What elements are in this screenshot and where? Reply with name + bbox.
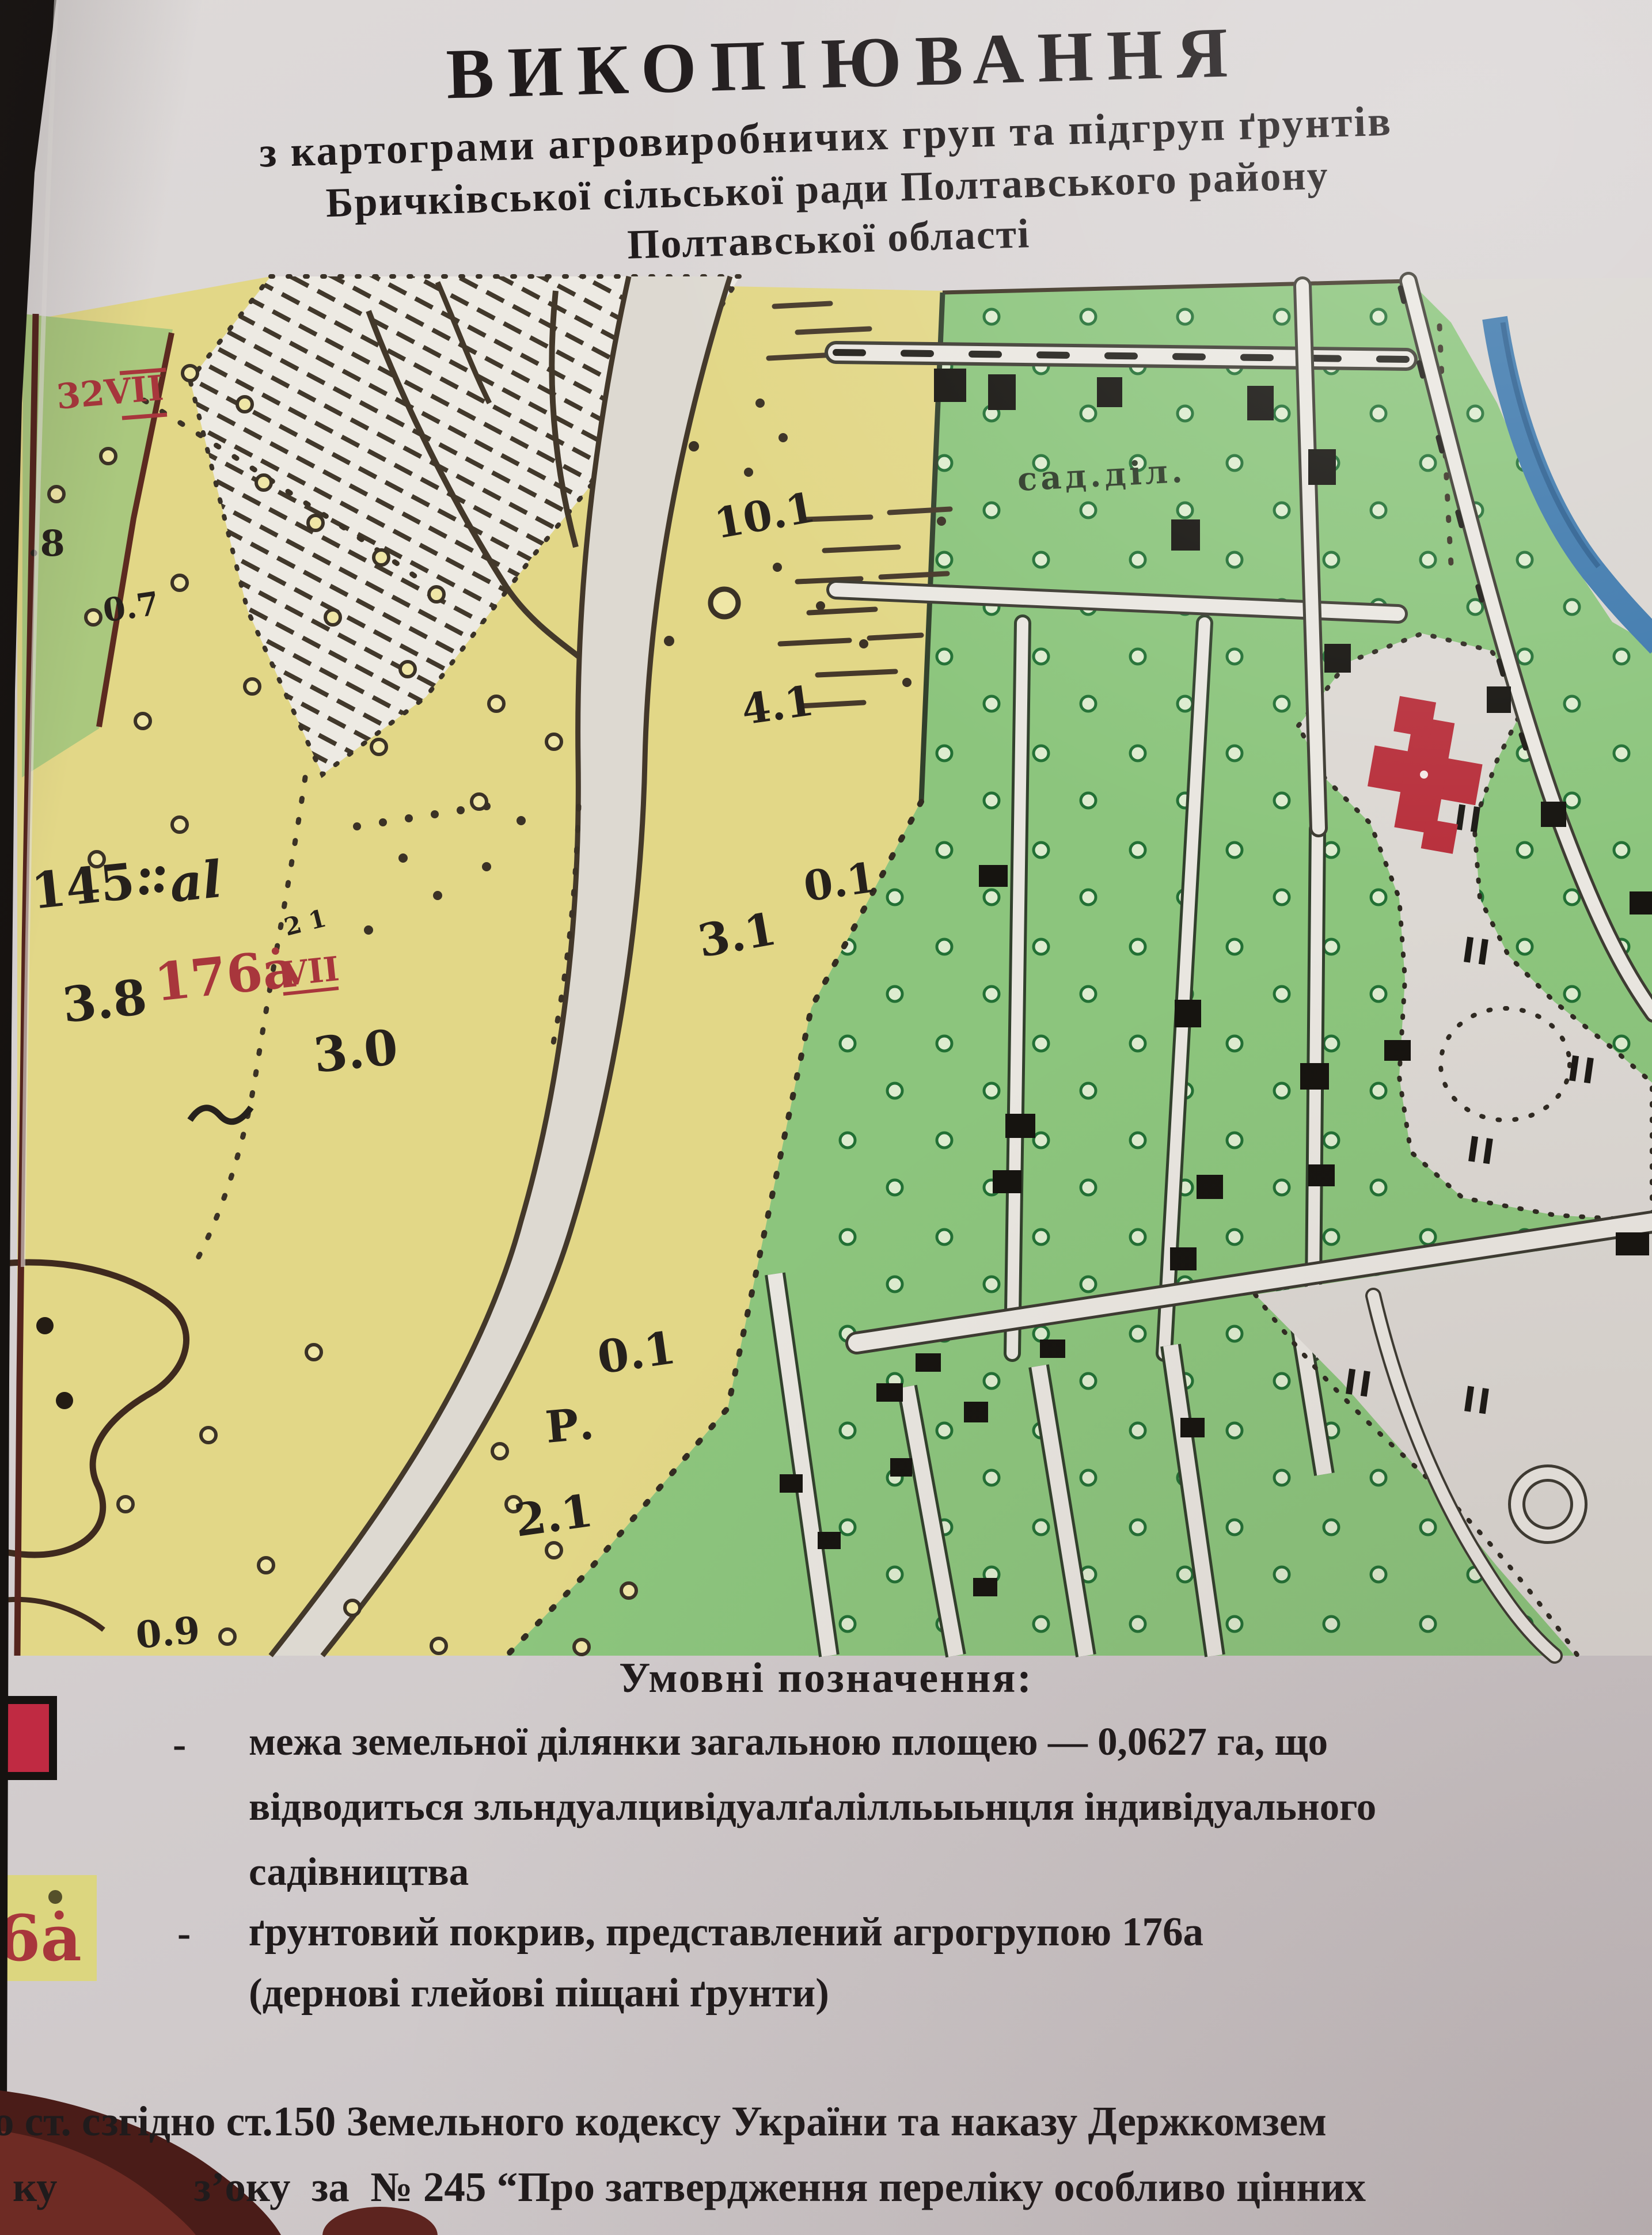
map-label-145: 145 bbox=[29, 852, 138, 921]
legend-item-soil: ґрунтовий покрив, представлений агрогруп… bbox=[249, 1902, 1203, 2024]
legend-item-line: межа земельної ділянки загальною площею … bbox=[249, 1709, 1376, 1774]
map-label-0-7: 0.7 bbox=[101, 585, 162, 630]
footer-line-2: ку зʼоку за № 245 “Про затвердження пере… bbox=[13, 2163, 1366, 2211]
legend-agrogroup-symbol: 6ȧ bbox=[0, 1875, 97, 1981]
map-label-3-8: 3.8 bbox=[60, 968, 150, 1034]
legend-bullet-2: - bbox=[177, 1911, 191, 1957]
map-label-r: Р. bbox=[544, 1398, 596, 1453]
document-page: 32VII .8 0.7 10.1 4.1 0.1 3.1 145 al 176… bbox=[0, 0, 1652, 2235]
map-label-0-1-lower: 0.1 bbox=[594, 1322, 679, 1384]
legend-item-line: ґрунтовий покрив, представлений агрогруп… bbox=[249, 1902, 1203, 1963]
legend-item-line: (дернові глейові піщані ґрунти) bbox=[249, 1963, 1203, 2024]
legend-item-boundary: межа земельної ділянки загальною площею … bbox=[249, 1709, 1376, 1904]
legend-agrogroup-text: 6ȧ bbox=[0, 1901, 82, 1975]
map-label-2-1: 2.1 bbox=[511, 1485, 596, 1547]
footer-line-1: о ст. сзгідно ст.150 Земельного кодексу … bbox=[0, 2097, 1327, 2146]
legend-item-line: відводиться зльндуалцивідуалґалілльыьнцл… bbox=[249, 1774, 1376, 1839]
map-label-145-index: al bbox=[166, 849, 225, 914]
title-block: ВИКОПІЮВАННЯ з картограми агровиробничих… bbox=[0, 0, 1652, 286]
map-label-4-1: 4.1 bbox=[739, 676, 817, 734]
legend-bullet-1: - bbox=[173, 1722, 186, 1768]
map-label-0-1-upper: 0.1 bbox=[801, 852, 879, 911]
legend-item-line: садівництва bbox=[249, 1839, 1376, 1904]
map-label-0-9: 0.9 bbox=[134, 1609, 202, 1657]
map-label-dot8: .8 bbox=[28, 522, 65, 564]
legend-heading: Умовні позначення: bbox=[0, 1654, 1652, 1703]
map-label-3-0: 3.0 bbox=[311, 1018, 401, 1084]
